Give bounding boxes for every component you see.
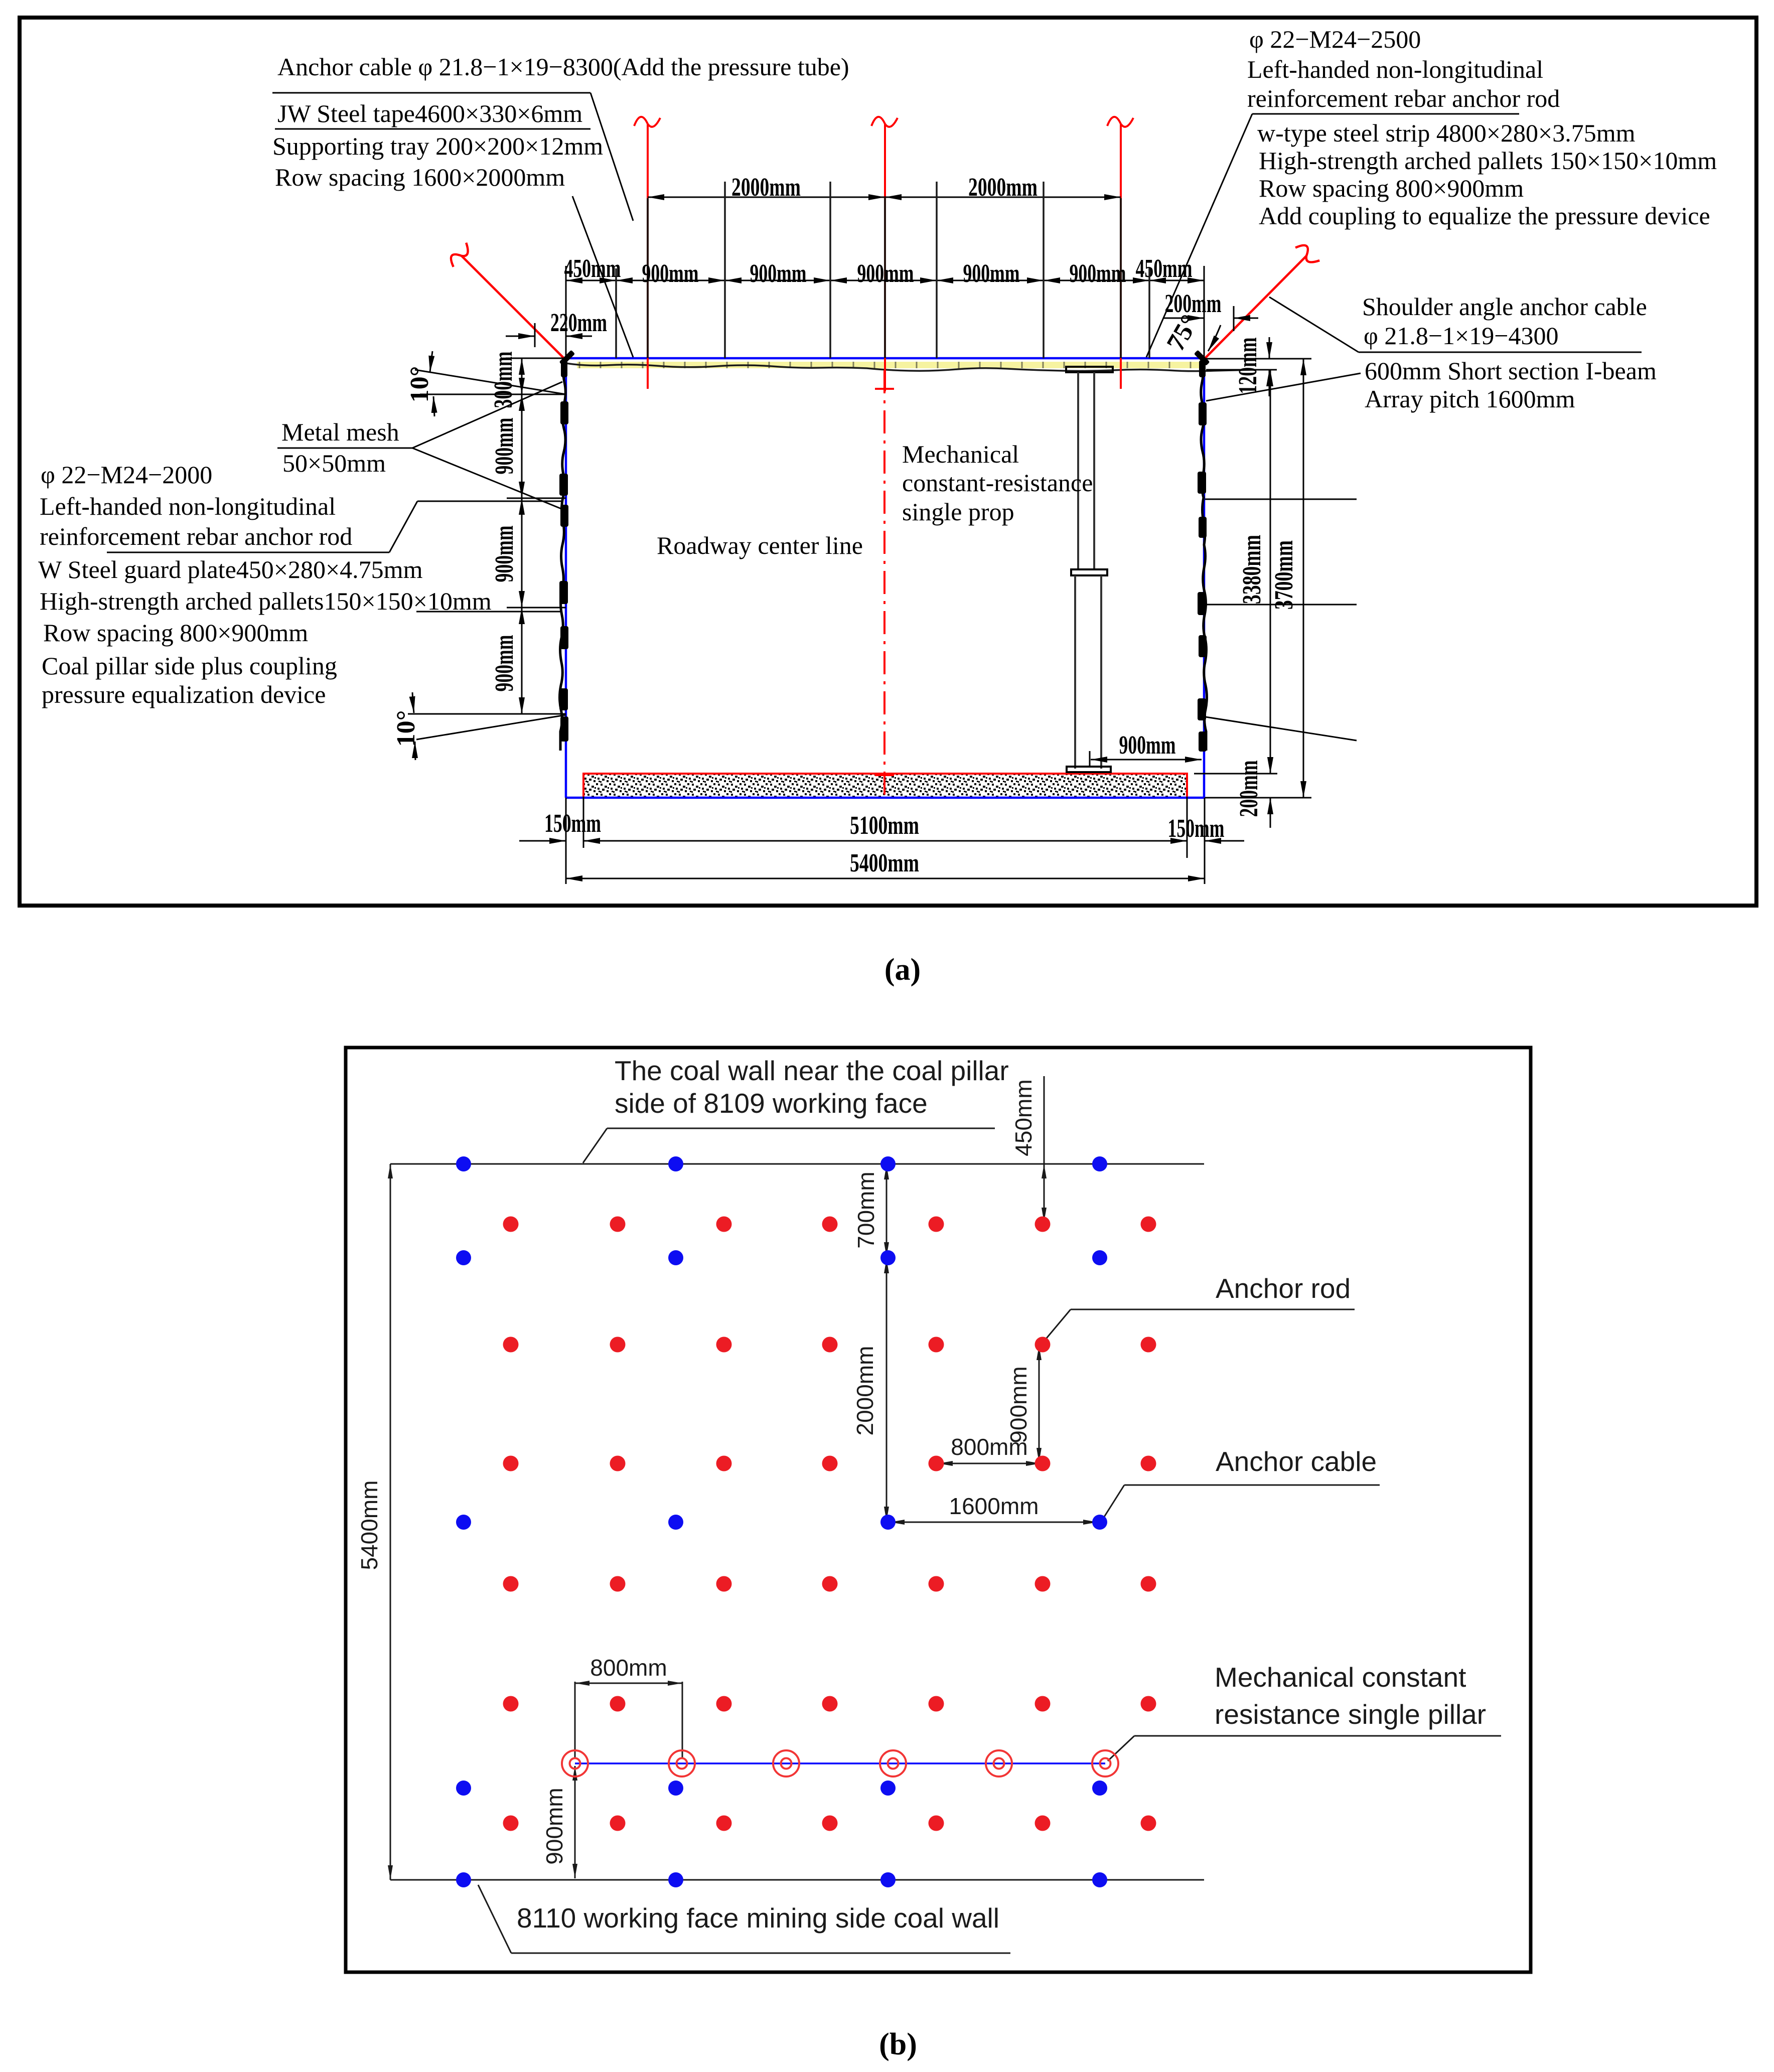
svg-text:Metal mesh: Metal mesh [281,418,399,446]
svg-text:2000mm: 2000mm [968,173,1038,202]
svg-text:3380mm: 3380mm [1238,535,1266,604]
svg-text:Mechanical: Mechanical [902,440,1019,468]
svg-text:Anchor cable φ 21.8−1×19−8300: Anchor cable φ 21.8−1×19−8300(Add the pr… [277,53,849,81]
svg-text:50×50mm: 50×50mm [282,449,386,477]
svg-text:side of 8109 working face: side of 8109 working face [615,1088,928,1119]
svg-text:900mm: 900mm [490,635,519,692]
svg-text:resistance single pillar: resistance single pillar [1215,1699,1486,1730]
svg-text:Anchor cable: Anchor cable [1216,1446,1377,1477]
svg-text:1600mm: 1600mm [949,1493,1039,1519]
svg-text:Supporting tray 200×200×12mm: Supporting tray 200×200×12mm [272,132,603,160]
svg-text:Left-handed non-longitudinal: Left-handed non-longitudinal [1247,55,1543,83]
svg-text:w-type steel strip 4800×280×3.: w-type steel strip 4800×280×3.75mm [1257,119,1636,147]
svg-text:900mm: 900mm [857,259,914,288]
svg-text:constant-resistance: constant-resistance [902,469,1093,497]
svg-text:150mm: 150mm [544,809,601,838]
svg-text:600mm Short section I-beam: 600mm Short section I-beam [1365,357,1657,385]
svg-text:5100mm: 5100mm [850,811,919,840]
svg-text:Roadway center line: Roadway center line [657,531,863,559]
svg-text:Row spacing 1600×2000mm: Row spacing 1600×2000mm [275,163,565,191]
svg-text:reinforcement rebar anchor rod: reinforcement rebar anchor rod [40,522,352,550]
svg-text:JW Steel tape4600×330×6mm: JW Steel tape4600×330×6mm [277,99,582,127]
svg-text:2000mm: 2000mm [852,1346,878,1436]
svg-text:Coal pillar side plus coupling: Coal pillar side plus coupling [42,652,337,680]
svg-text:φ 22−M24−2000: φ 22−M24−2000 [41,461,212,489]
svg-text:10°: 10° [405,366,434,403]
svg-text:Row spacing 800×900mm: Row spacing 800×900mm [1259,174,1524,202]
svg-text:200mm: 200mm [1235,761,1263,817]
svg-text:single prop: single prop [902,498,1014,526]
svg-text:900mm: 900mm [1070,259,1126,288]
svg-text:700mm: 700mm [853,1171,879,1248]
svg-text:800mm: 800mm [590,1655,667,1681]
svg-text:900mm: 900mm [642,259,699,288]
svg-text:(a): (a) [884,953,921,987]
svg-text:150mm: 150mm [1168,814,1225,843]
svg-text:Anchor rod: Anchor rod [1216,1273,1351,1304]
svg-text:Row spacing 800×900mm: Row spacing 800×900mm [43,619,308,647]
svg-text:900mm: 900mm [541,1788,567,1864]
svg-text:Add coupling to equalize the p: Add coupling to equalize the pressure de… [1259,202,1710,230]
svg-text:900mm: 900mm [1005,1366,1031,1443]
svg-text:220mm: 220mm [550,309,607,337]
svg-text:Left-handed non-longitudinal: Left-handed non-longitudinal [40,492,336,520]
svg-text:450mm: 450mm [564,254,621,283]
svg-text:5400mm: 5400mm [356,1481,382,1570]
svg-text:reinforcement rebar anchor rod: reinforcement rebar anchor rod [1247,84,1560,112]
svg-text:450mm: 450mm [1136,254,1193,283]
svg-text:High-strength arched pallets 1: High-strength arched pallets 150×150×10m… [1259,146,1717,175]
svg-text:φ 22−M24−2500: φ 22−M24−2500 [1249,25,1421,53]
svg-text:900mm: 900mm [490,526,519,582]
svg-text:(b): (b) [879,2027,917,2061]
svg-text:W Steel guard plate450×280×4.7: W Steel guard plate450×280×4.75mm [38,555,423,583]
svg-text:450mm: 450mm [1010,1079,1037,1156]
svg-text:300mm: 300mm [489,352,518,408]
svg-text:5400mm: 5400mm [850,849,919,877]
svg-text:900mm: 900mm [750,259,807,288]
svg-text:900mm: 900mm [490,418,519,475]
svg-text:Shoulder angle anchor cable: Shoulder angle anchor cable [1362,292,1647,321]
svg-text:Array pitch 1600mm: Array pitch 1600mm [1365,385,1575,413]
svg-text:pressure equalization device: pressure equalization device [42,680,326,708]
svg-text:800mm: 800mm [951,1434,1027,1460]
svg-text:φ 21.8−1×19−4300: φ 21.8−1×19−4300 [1364,322,1558,350]
svg-text:900mm: 900mm [1119,731,1176,760]
svg-text:8110 working face mining side: 8110 working face mining side coal wall [517,1902,999,1934]
svg-text:Mechanical constant: Mechanical constant [1215,1662,1466,1693]
svg-text:2000mm: 2000mm [731,173,801,202]
svg-text:The coal wall near the coal pi: The coal wall near the coal pillar [615,1055,1009,1086]
svg-text:3700mm: 3700mm [1270,540,1298,610]
svg-text:120mm: 120mm [1234,338,1262,394]
svg-text:10°: 10° [392,710,420,747]
svg-text:900mm: 900mm [963,259,1020,288]
